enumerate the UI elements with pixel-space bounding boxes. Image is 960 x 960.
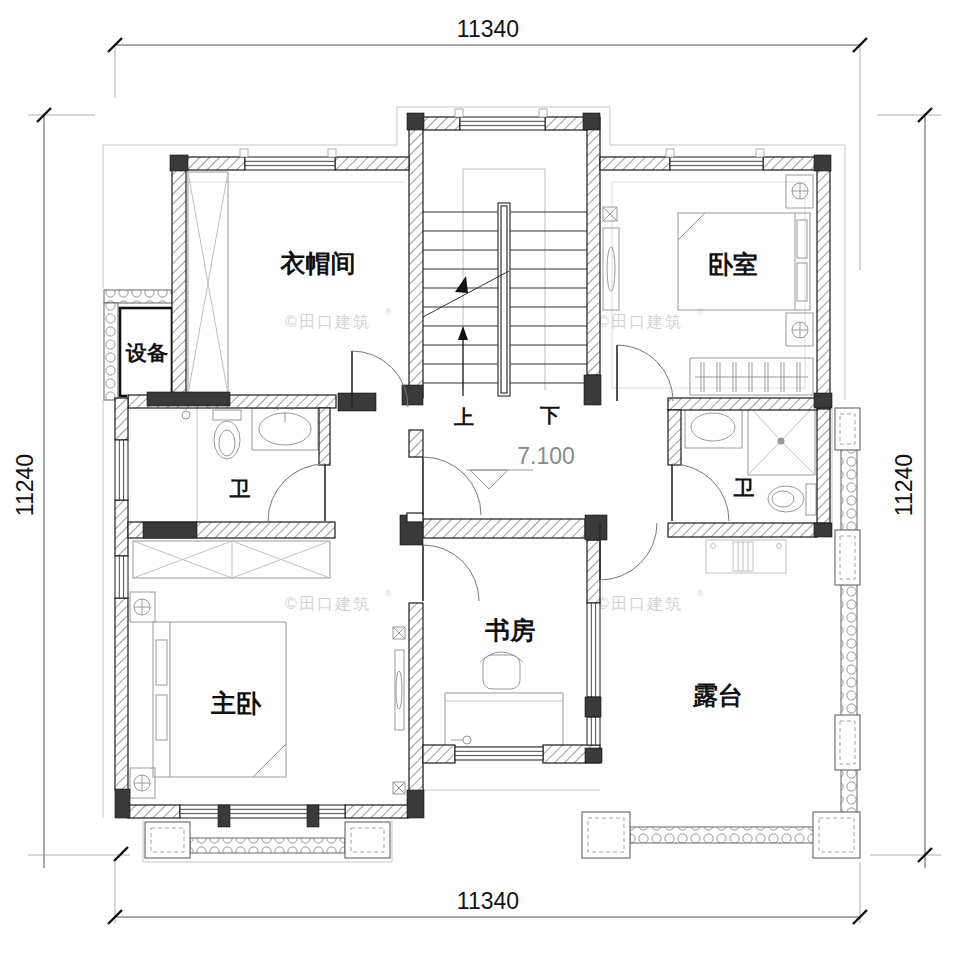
watermark-reg-icon: ® <box>385 307 392 317</box>
dim-left-value: 11240 <box>12 454 38 516</box>
watermark-text: ©田口建筑 <box>285 595 371 612</box>
room-label-bath-left: 卫 <box>229 477 251 500</box>
watermark-reg-icon: ® <box>385 589 392 599</box>
watermark-text: ©田口建筑 <box>597 595 683 612</box>
room-label-bath-right: 卫 <box>733 476 755 499</box>
room-label-bedroom: 卧室 <box>708 250 758 278</box>
room-label-study: 书房 <box>485 616 535 644</box>
dim-top-value: 11340 <box>457 16 519 42</box>
master-bottom-window <box>180 805 345 818</box>
elevation-value: 7.100 <box>517 443 575 469</box>
room-label-master-bedroom: 主卧 <box>210 689 262 717</box>
study-bottom-window <box>455 747 543 760</box>
stair-window <box>460 117 545 130</box>
watermark-reg-icon: ® <box>697 589 704 599</box>
cloakroom-window <box>245 157 335 170</box>
bath-left-window <box>115 440 128 500</box>
dim-bottom-value: 11340 <box>457 888 519 914</box>
room-label-terrace: 露台 <box>692 681 743 709</box>
floor-plan: ©田口建筑 ® ©田口建筑 ® ©田口建筑 ® ©田口建筑 ® <box>0 0 960 960</box>
watermark-text: ©田口建筑 <box>597 313 683 330</box>
master-left-window <box>115 556 128 598</box>
stair-down-label: 下 <box>539 404 560 426</box>
stair-up-label: 上 <box>453 406 474 428</box>
dim-right-value: 11240 <box>891 454 917 516</box>
bedroom-window <box>670 157 763 170</box>
room-label-equipment: 设备 <box>125 341 169 364</box>
room-label-cloakroom: 衣帽间 <box>280 249 356 277</box>
watermark-text: ©田口建筑 <box>285 313 371 330</box>
watermark-reg-icon: ® <box>697 307 704 317</box>
study-terrace-glass-door <box>587 603 600 745</box>
